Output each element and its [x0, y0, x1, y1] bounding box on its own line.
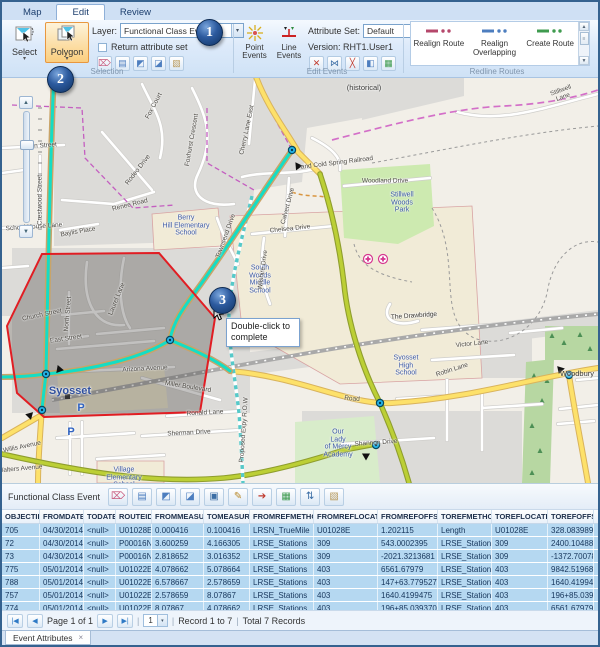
realign-route-button[interactable]: Realign Route — [411, 22, 467, 65]
callout-2: 2 — [47, 66, 74, 93]
table-cell: 3.600259 — [152, 537, 204, 549]
tab-map[interactable]: Map — [8, 5, 56, 20]
column-header[interactable]: FROMREFOFFSET — [378, 510, 438, 523]
table-cell: 403 — [314, 563, 378, 575]
table-cell: 309 — [314, 537, 378, 549]
table-title: Functional Class Event — [8, 492, 100, 502]
table-toolbar: Functional Class Event ⌦▤◩◪▣✎➔▦⇅▧ — [2, 484, 598, 510]
draw-tooltip: Double-click to complete — [226, 318, 300, 347]
column-header[interactable]: FROMREFMETHOD — [250, 510, 314, 523]
attribute-set-label: Attribute Set: — [308, 26, 360, 36]
table-cell: 05/01/2014 — [40, 602, 84, 610]
table-row[interactable]: 7204/30/2014<null>P00016N3.6002594.16630… — [2, 537, 598, 550]
table-cell: LRSE_Stations — [250, 563, 314, 575]
table-cell: 0.100416 — [204, 524, 250, 536]
table-cell: 05/01/2014 — [40, 563, 84, 575]
table-cell: 6561.67979 — [548, 602, 594, 610]
table-cell: 403 — [492, 589, 548, 601]
table-cell: P00016N — [116, 550, 152, 562]
zoom-in-icon[interactable]: ▲ — [19, 96, 33, 109]
table-cell: 403 — [314, 576, 378, 588]
sort-icon[interactable]: ⇅ — [300, 488, 320, 506]
table-cell: 147+63.7795276 — [378, 576, 438, 588]
point-events-icon — [246, 24, 264, 44]
table-row[interactable]: 70504/30/2014<null>U01028E0.0004160.1004… — [2, 524, 598, 537]
table-header-row[interactable]: OBJECTIDFROMDATETODATEROUTEIDFROMMEASURE… — [2, 510, 598, 524]
column-header[interactable]: TOMEASURE — [204, 510, 250, 523]
return-attribute-set-label: Return attribute set — [111, 42, 188, 52]
point-events-label: Point Events — [240, 44, 269, 61]
table-cell: LRSE_Stations — [438, 563, 492, 575]
table-cell: -1372.7007874 — [548, 550, 594, 562]
pan-to-selection-icon[interactable]: ◪ — [180, 488, 200, 506]
line-events-icon — [280, 24, 298, 44]
table-cell: <null> — [84, 550, 116, 562]
table-cell: 4.078662 — [204, 602, 250, 610]
station-marker — [65, 394, 70, 399]
column-header[interactable]: TOREFMETHOD — [438, 510, 492, 523]
column-header[interactable]: FROMREFLOCATION — [314, 510, 378, 523]
pagination-bar: |◀ ◀ Page 1 of 1 ▶ ▶| | 1 ▾ | Record 1 t… — [2, 610, 598, 630]
ribbon: Select ▾ Polygon ▾ Layer: Functional Cla… — [2, 20, 598, 78]
table-cell: 196+85.0393701 — [548, 589, 594, 601]
scrollbar-thumb[interactable]: ≡ — [580, 32, 589, 45]
scroll-down-icon[interactable]: ▼ — [579, 56, 589, 65]
table-cell: 5.078664 — [204, 563, 250, 575]
table-cell: 05/01/2014 — [40, 589, 84, 601]
group-divider — [403, 24, 404, 73]
table-cell: U01028E — [492, 524, 548, 536]
table-cell: U01028E — [314, 524, 378, 536]
table-cell: LRSE_Stations — [250, 602, 314, 610]
record-range-label: Record 1 to 7 — [178, 616, 232, 626]
table-cell: 309 — [492, 537, 548, 549]
table-cell: 8.07867 — [152, 602, 204, 610]
column-header[interactable]: FROMMEASURE — [152, 510, 204, 523]
table-cell: -2021.3213681 — [378, 550, 438, 562]
table-cell: 2.578659 — [152, 589, 204, 601]
save-icon[interactable]: ▣ — [204, 488, 224, 506]
table-cell: <null> — [84, 537, 116, 549]
create-route-button[interactable]: Create Route — [522, 22, 578, 65]
tab-event-attributes[interactable]: Event Attributes × — [5, 631, 91, 645]
table-cell: 705 — [2, 524, 40, 536]
point-events-button[interactable]: Point Events — [237, 22, 272, 63]
layer-select[interactable]: Functional Class Event ▾ — [120, 23, 244, 38]
column-header[interactable]: FROMDATE — [40, 510, 84, 523]
next-page-button[interactable]: ▶ — [97, 614, 113, 628]
tab-edit[interactable]: Edit — [56, 4, 104, 20]
table-cell: U01022E — [116, 589, 152, 601]
table-row[interactable]: 75705/01/2014<null>U01022E2.5786598.0786… — [2, 589, 598, 602]
table-cell: LRSE_Stations — [438, 602, 492, 610]
table-cell: 1640.4199475 — [548, 576, 594, 588]
total-records-label: Total 7 Records — [243, 616, 306, 626]
map-basemap — [2, 78, 598, 483]
layer-label: Layer: — [92, 26, 117, 36]
polygon-icon — [56, 24, 78, 48]
table-cell: 788 — [2, 576, 40, 588]
table-cell: 2.818652 — [152, 550, 204, 562]
table-cell: LRSE_Stations — [250, 537, 314, 549]
scroll-up-icon[interactable]: ▲ — [579, 22, 589, 31]
table-cell: 403 — [492, 576, 548, 588]
table-body: 70504/30/2014<null>U01028E0.0004160.1004… — [2, 524, 598, 610]
attribute-table-icon[interactable]: ▦ — [276, 488, 296, 506]
first-page-button[interactable]: |◀ — [7, 614, 23, 628]
page-label: Page 1 of 1 — [47, 616, 93, 626]
table-cell: 2400.1048819 — [548, 537, 594, 549]
table-cell: 2.578659 — [204, 576, 250, 588]
table-cell: Length — [438, 524, 492, 536]
map-canvas[interactable]: SyossetBerry Hill Elementary SchoolSouth… — [2, 78, 598, 483]
line-events-button[interactable]: Line Events — [273, 22, 305, 63]
table-cell: 4.166305 — [204, 537, 250, 549]
clear-selection-icon[interactable]: ⌦ — [108, 488, 128, 506]
zoom-to-selection-icon[interactable]: ◩ — [156, 488, 176, 506]
return-attribute-set-checkbox[interactable] — [98, 43, 107, 52]
table-cell: LRSN_TrueMile — [250, 524, 314, 536]
app-window: Map Edit Review Select ▾ Polygon ▾ Layer… — [0, 0, 600, 647]
table-cell: 403 — [492, 563, 548, 575]
column-header[interactable]: ROUTEID — [116, 510, 152, 523]
table-cell: 04/30/2014 — [40, 550, 84, 562]
realign-overlapping-label: Realign Overlapping — [467, 40, 523, 58]
select-button[interactable]: Select ▾ — [6, 22, 43, 63]
table-cell: LRSE_Stations — [438, 576, 492, 588]
realign-overlapping-button[interactable]: Realign Overlapping — [467, 22, 523, 65]
polygon-dropdown-arrow[interactable]: ▾ — [65, 57, 68, 61]
table-cell: 1640.4199475 — [378, 589, 438, 601]
event-table-panel: Functional Class Event ⌦▤◩◪▣✎➔▦⇅▧ OBJECT… — [2, 483, 598, 630]
table-cell: <null> — [84, 563, 116, 575]
zoom-out-icon[interactable]: ▼ — [19, 225, 33, 238]
select-dropdown-arrow[interactable]: ▾ — [23, 57, 26, 61]
table-cell: 04/30/2014 — [40, 524, 84, 536]
line-events-label: Line Events — [276, 44, 302, 61]
table-cell: 73 — [2, 550, 40, 562]
table-cell: <null> — [84, 524, 116, 536]
close-icon[interactable]: × — [79, 633, 84, 642]
table-cell: 757 — [2, 589, 40, 601]
table-cell: <null> — [84, 602, 116, 610]
redline-routes-panel: Realign Route Realign Overlapping Create… — [410, 21, 590, 66]
realign-route-icon — [425, 27, 453, 37]
group-divider — [233, 24, 234, 73]
edit-records-icon[interactable]: ✎ — [228, 488, 248, 506]
table-cell: LRSE_Stations — [438, 550, 492, 562]
select-icon — [14, 24, 36, 48]
zoom-slider-handle[interactable] — [20, 140, 34, 150]
table-cell: 6.578667 — [152, 576, 204, 588]
table-cell: 72 — [2, 537, 40, 549]
last-page-button[interactable]: ▶| — [117, 614, 133, 628]
table-cell: 403 — [314, 589, 378, 601]
options-icon[interactable]: ▧ — [324, 488, 344, 506]
zoom-slider[interactable]: ▲ ▼ — [18, 96, 34, 238]
table-cell: 196+85.0393701 — [378, 602, 438, 610]
table-cell: 309 — [314, 550, 378, 562]
table-cell: U01028E — [116, 524, 152, 536]
column-header[interactable]: TOREFLOCATION — [492, 510, 548, 523]
tab-review[interactable]: Review — [105, 5, 166, 20]
table-cell: 543.0002395 — [378, 537, 438, 549]
table-cell: 328.0839895 — [548, 524, 594, 536]
table-cell: LRSE_Stations — [250, 589, 314, 601]
edit-events-group-label: Edit Events — [257, 67, 397, 76]
table-cell: LRSE_Stations — [438, 589, 492, 601]
redline-routes-group-label: Redline Routes — [422, 67, 572, 76]
callout-3: 3 — [209, 287, 236, 314]
callout-1: 1 — [196, 19, 223, 46]
column-header[interactable]: OBJECTID — [2, 510, 40, 523]
table-cell: <null> — [84, 576, 116, 588]
column-header[interactable]: TOREFOFFSET — [548, 510, 594, 523]
table-cell: P00016N — [116, 537, 152, 549]
table-cell: 8.07867 — [204, 589, 250, 601]
table-cell: 05/01/2014 — [40, 576, 84, 588]
table-cell: 3.016352 — [204, 550, 250, 562]
zoom-slider-track[interactable] — [23, 111, 30, 223]
table-cell: 04/30/2014 — [40, 537, 84, 549]
bottom-tab-bar: Event Attributes × — [2, 630, 598, 645]
table-cell: U01022E — [116, 563, 152, 575]
polygon-select-button[interactable]: Polygon ▾ — [45, 22, 89, 63]
table-cell: 774 — [2, 602, 40, 610]
table-cell: 403 — [314, 602, 378, 610]
table-cell: 9842.519685 — [548, 563, 594, 575]
table-row[interactable]: 77505/01/2014<null>U01022E4.0786625.0786… — [2, 563, 598, 576]
table-cell: <null> — [84, 589, 116, 601]
realign-route-label: Realign Route — [413, 40, 464, 49]
table-row[interactable]: 77405/01/2014<null>U01022E8.078674.07866… — [2, 602, 598, 610]
prev-page-button[interactable]: ◀ — [27, 614, 43, 628]
table-cell: 4.078662 — [152, 563, 204, 575]
version-label: Version: RHT1.User1 — [308, 42, 393, 52]
table-cell: U01022E — [116, 602, 152, 610]
table-cell: LRSE_Stations — [250, 550, 314, 562]
create-route-label: Create Route — [526, 40, 574, 49]
page-dropdown-arrow[interactable]: ▾ — [157, 615, 167, 626]
table-row[interactable]: 78805/01/2014<null>U01022E6.5786672.5786… — [2, 576, 598, 589]
page-number-select[interactable]: 1 ▾ — [143, 614, 167, 627]
table-cell: LRSE_Stations — [438, 537, 492, 549]
column-header[interactable]: TODATE — [84, 510, 116, 523]
table-cell: 309 — [492, 550, 548, 562]
ribbon-tabstrip: Map Edit Review — [2, 2, 598, 20]
table-cell: U01022E — [116, 576, 152, 588]
table-toolbar-icons: ⌦▤◩◪▣✎➔▦⇅▧ — [108, 488, 344, 506]
table-cell: 6561.67979 — [378, 563, 438, 575]
table-cell: 775 — [2, 563, 40, 575]
table-cell: 0.000416 — [152, 524, 204, 536]
table-cell: 403 — [492, 602, 548, 610]
redline-scrollbar[interactable]: ▲ ≡ ▼ — [578, 22, 589, 65]
table-row[interactable]: 7304/30/2014<null>P00016N2.8186523.01635… — [2, 550, 598, 563]
export-icon[interactable]: ➔ — [252, 488, 272, 506]
table-cell: LRSE_Stations — [250, 576, 314, 588]
show-list-icon[interactable]: ▤ — [132, 488, 152, 506]
table-cell: 1.202115 — [378, 524, 438, 536]
realign-overlapping-icon — [481, 27, 509, 37]
create-route-icon — [536, 27, 564, 37]
